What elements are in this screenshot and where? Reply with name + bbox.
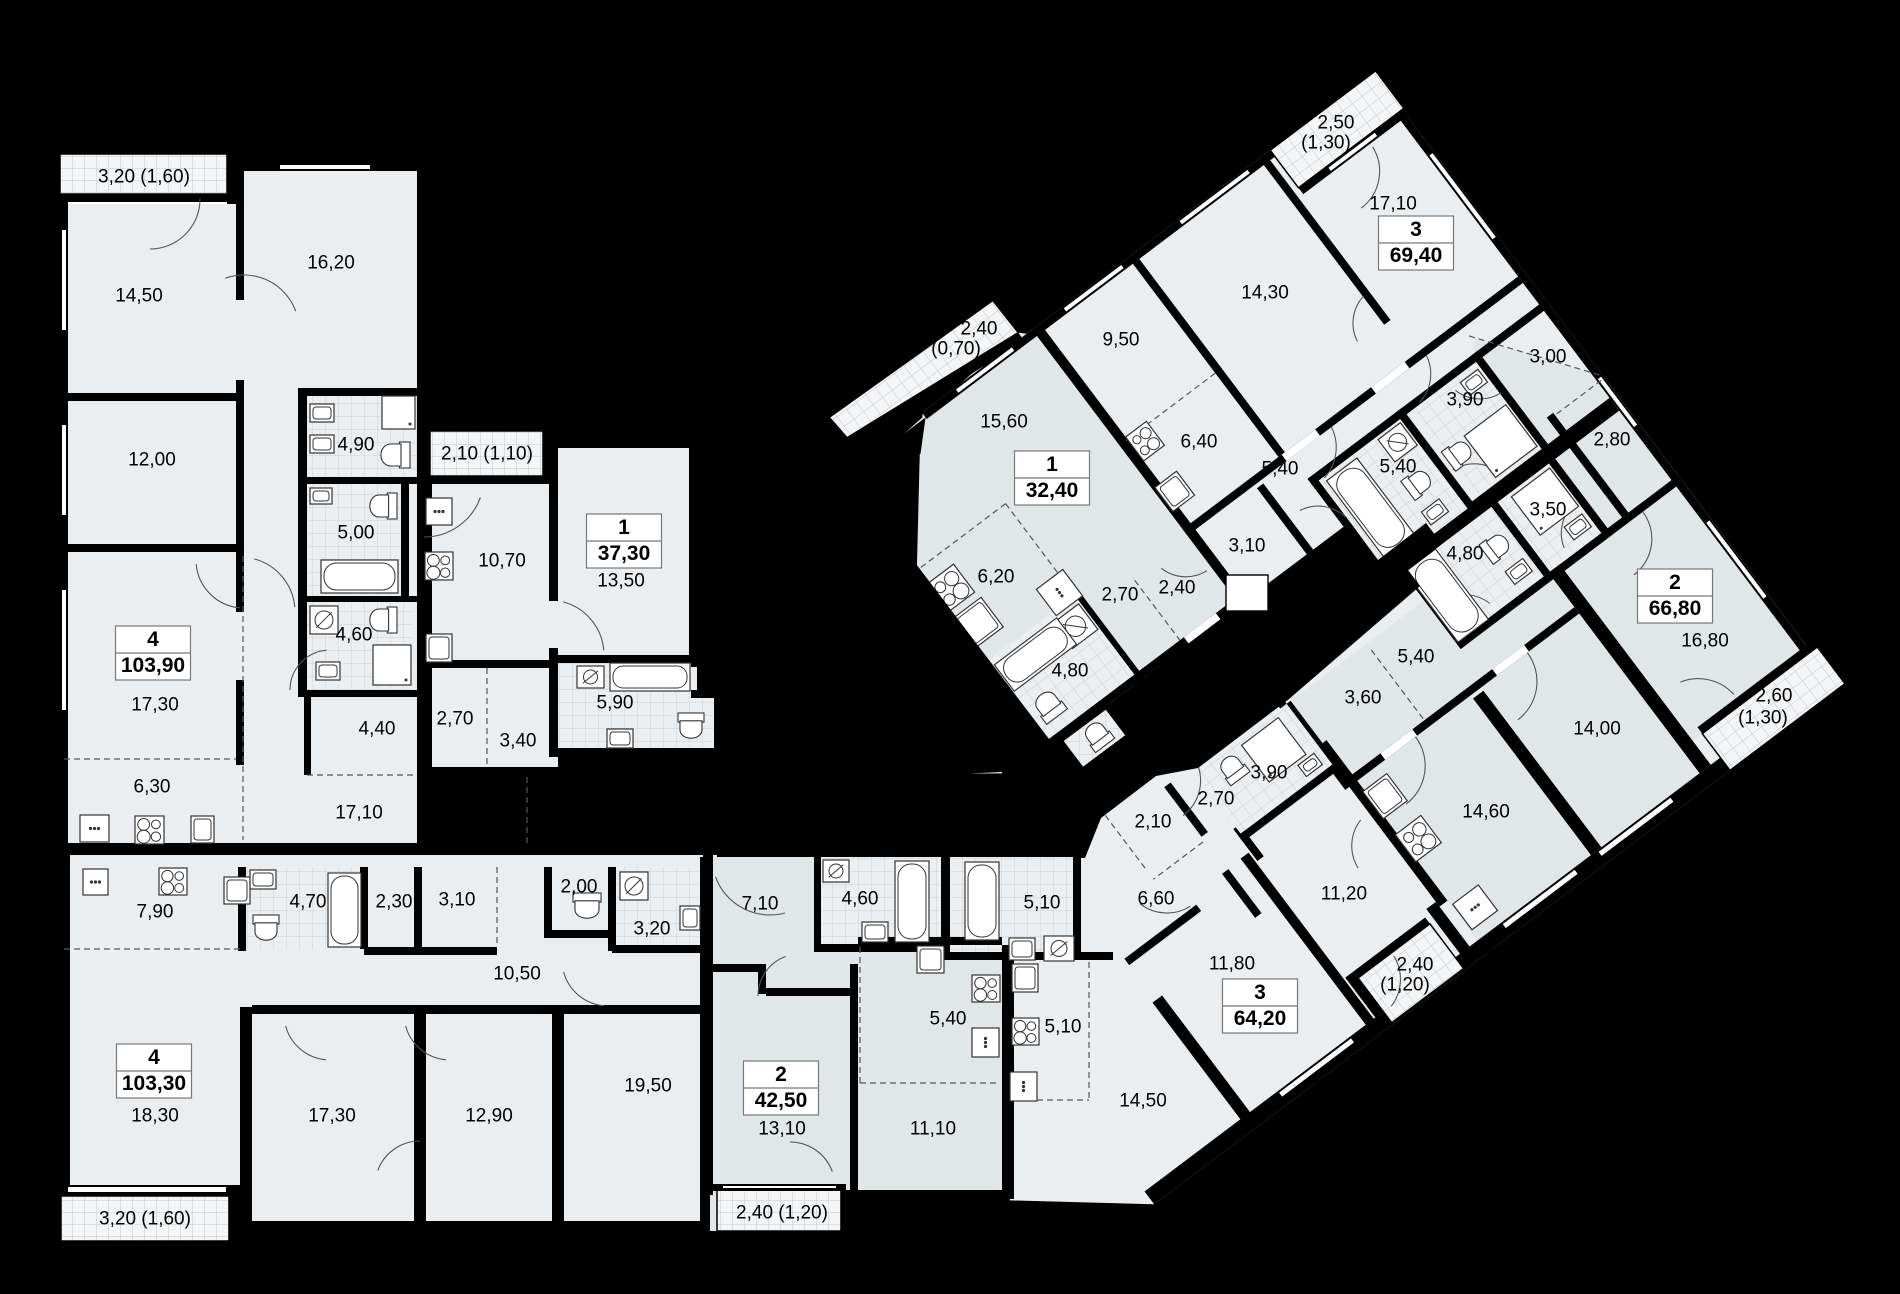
svg-text:3: 3 (1410, 218, 1422, 241)
svg-text:5,40: 5,40 (1262, 459, 1299, 480)
svg-text:5,00: 5,00 (338, 523, 375, 544)
svg-text:14,60: 14,60 (1462, 802, 1510, 823)
svg-text:2,60: 2,60 (1756, 686, 1793, 707)
svg-text:4,80: 4,80 (1447, 544, 1484, 565)
svg-text:9,50: 9,50 (1103, 330, 1140, 351)
svg-text:4,60: 4,60 (842, 889, 879, 910)
svg-text:11,10: 11,10 (910, 1119, 956, 1140)
svg-text:2,40: 2,40 (1397, 955, 1434, 976)
svg-text:16,80: 16,80 (1681, 631, 1729, 652)
svg-text:2,00: 2,00 (561, 877, 598, 898)
svg-text:(1,30): (1,30) (1301, 133, 1351, 154)
svg-text:2,70: 2,70 (1102, 585, 1139, 606)
svg-text:4: 4 (148, 1046, 160, 1069)
svg-text:3,10: 3,10 (439, 890, 476, 911)
svg-text:4: 4 (147, 628, 159, 651)
svg-text:14,50: 14,50 (115, 286, 163, 307)
svg-text:7,90: 7,90 (137, 902, 174, 923)
svg-text:6,30: 6,30 (134, 777, 171, 798)
svg-text:6,20: 6,20 (978, 567, 1015, 588)
svg-text:(1,20): (1,20) (1380, 975, 1430, 996)
svg-text:37,30: 37,30 (598, 542, 651, 565)
svg-text:3,10: 3,10 (1229, 536, 1266, 557)
svg-text:5,40: 5,40 (1380, 457, 1417, 478)
svg-text:3,60: 3,60 (1345, 688, 1382, 709)
svg-text:7,10: 7,10 (742, 894, 779, 915)
svg-text:4,80: 4,80 (1052, 661, 1089, 682)
svg-text:103,90: 103,90 (121, 654, 185, 677)
svg-text:14,30: 14,30 (1241, 283, 1289, 304)
svg-text:2,80: 2,80 (1594, 430, 1631, 451)
svg-text:3,20 (1,60): 3,20 (1,60) (99, 1209, 191, 1230)
svg-text:6,40: 6,40 (1181, 432, 1218, 453)
svg-text:3,90: 3,90 (1251, 763, 1288, 784)
svg-text:5,10: 5,10 (1024, 893, 1061, 914)
svg-text:17,30: 17,30 (308, 1106, 356, 1127)
svg-text:2,50: 2,50 (1318, 113, 1355, 134)
svg-text:2,30: 2,30 (376, 892, 413, 913)
svg-text:14,00: 14,00 (1573, 719, 1621, 740)
svg-text:19,50: 19,50 (624, 1076, 672, 1097)
svg-text:(0,70): (0,70) (931, 339, 981, 360)
svg-text:4,70: 4,70 (290, 892, 327, 913)
svg-text:6,60: 6,60 (1138, 889, 1175, 910)
svg-text:15,60: 15,60 (980, 412, 1028, 433)
svg-text:5,10: 5,10 (1045, 1017, 1082, 1038)
svg-text:1: 1 (618, 516, 630, 539)
svg-text:69,40: 69,40 (1390, 244, 1443, 267)
svg-text:17,10: 17,10 (335, 803, 383, 824)
svg-text:42,50: 42,50 (755, 1089, 808, 1112)
svg-text:3,20: 3,20 (634, 919, 671, 940)
svg-text:2,70: 2,70 (1198, 789, 1235, 810)
svg-text:10,70: 10,70 (478, 551, 526, 572)
svg-text:3,20 (1,60): 3,20 (1,60) (98, 167, 190, 188)
svg-text:64,20: 64,20 (1234, 1007, 1287, 1030)
svg-text:11,20: 11,20 (1321, 884, 1367, 905)
svg-text:16,20: 16,20 (307, 253, 355, 274)
svg-text:12,00: 12,00 (128, 450, 176, 471)
svg-text:4,40: 4,40 (359, 719, 396, 740)
svg-text:5,90: 5,90 (597, 693, 634, 714)
svg-text:2,40 (1,20): 2,40 (1,20) (736, 1203, 828, 1224)
svg-text:2: 2 (1669, 571, 1681, 594)
svg-text:2,40: 2,40 (961, 319, 998, 340)
svg-text:18,30: 18,30 (131, 1106, 179, 1127)
svg-text:3: 3 (1254, 981, 1266, 1004)
svg-text:13,50: 13,50 (597, 571, 645, 592)
svg-text:5,40: 5,40 (1398, 647, 1435, 668)
svg-text:2,40: 2,40 (1159, 578, 1196, 599)
svg-text:(1,30): (1,30) (1738, 708, 1788, 729)
svg-text:2,70: 2,70 (437, 709, 474, 730)
svg-text:17,30: 17,30 (131, 695, 179, 716)
svg-text:4,60: 4,60 (336, 625, 373, 646)
svg-text:66,80: 66,80 (1649, 597, 1702, 620)
svg-text:3,00: 3,00 (1530, 347, 1567, 368)
svg-text:13,10: 13,10 (758, 1119, 806, 1140)
svg-text:17,10: 17,10 (1369, 194, 1417, 215)
svg-text:11,80: 11,80 (1209, 954, 1255, 975)
svg-text:14,50: 14,50 (1119, 1091, 1167, 1112)
svg-text:2,10 (1,10): 2,10 (1,10) (441, 444, 533, 465)
svg-text:103,30: 103,30 (122, 1072, 186, 1095)
svg-text:3,40: 3,40 (500, 731, 537, 752)
svg-text:2: 2 (775, 1063, 787, 1086)
svg-text:3,50: 3,50 (1530, 500, 1567, 521)
svg-text:3,90: 3,90 (1447, 390, 1484, 411)
svg-text:1: 1 (1046, 453, 1058, 476)
svg-text:10,50: 10,50 (493, 964, 541, 985)
svg-text:12,90: 12,90 (465, 1106, 513, 1127)
svg-text:4,90: 4,90 (338, 435, 375, 456)
svg-text:5,40: 5,40 (930, 1009, 967, 1030)
svg-text:2,10: 2,10 (1135, 812, 1172, 833)
svg-text:32,40: 32,40 (1026, 479, 1079, 502)
